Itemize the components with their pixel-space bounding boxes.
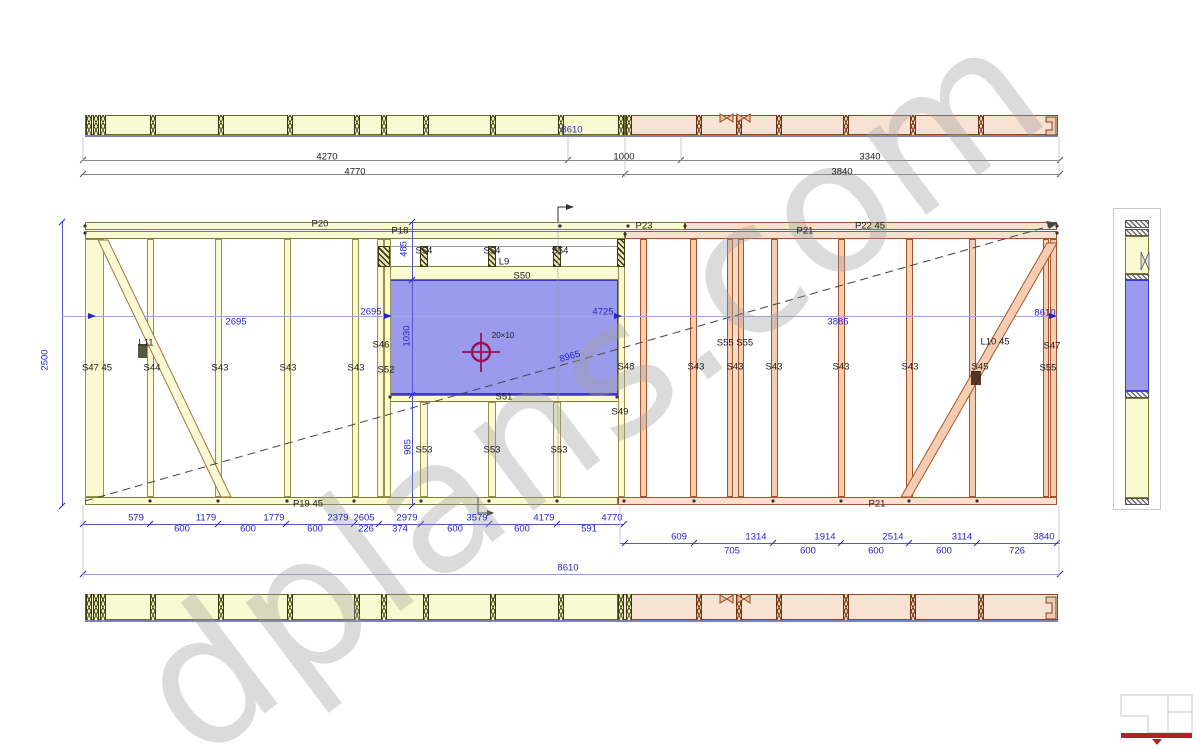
dim-label: 226 bbox=[358, 524, 374, 534]
dim-label: 4725 bbox=[592, 307, 613, 317]
dim-label: 600 bbox=[936, 546, 952, 556]
dim-label: 2514 bbox=[882, 532, 903, 542]
part-label: S55 S55 bbox=[717, 338, 753, 348]
part-label: P23 bbox=[636, 221, 653, 231]
dim-label: 4770 bbox=[344, 167, 365, 177]
dim-label: 3885 bbox=[827, 317, 848, 327]
dim-label: 2695 bbox=[225, 317, 246, 327]
dim-label: 2379 bbox=[327, 513, 348, 523]
dim-label: 4270 bbox=[316, 152, 337, 162]
dim-label: 1030 bbox=[402, 325, 412, 346]
dim-label: 2500 bbox=[40, 349, 50, 370]
part-label: S51 bbox=[496, 392, 513, 402]
part-label: S46 bbox=[373, 340, 390, 350]
part-label: P21 bbox=[869, 499, 886, 509]
dim-label: 3579 bbox=[466, 513, 487, 523]
framing-drawing-sheet: dplans.com P20P18P23P21P22 45P19 45P21S4… bbox=[0, 0, 1200, 750]
dim-label: 1779 bbox=[263, 513, 284, 523]
dim-label: 8965 bbox=[559, 350, 582, 365]
dim-label: 600 bbox=[240, 524, 256, 534]
part-label: P18 bbox=[392, 226, 409, 236]
dim-label: 8610 bbox=[557, 563, 578, 573]
part-label: S49 bbox=[612, 407, 629, 417]
dim-label: 1314 bbox=[745, 532, 766, 542]
part-label: L11 bbox=[138, 338, 153, 348]
part-label: P22 45 bbox=[855, 221, 885, 231]
part-label: L10 45 bbox=[980, 337, 1009, 347]
part-label: S53 bbox=[551, 445, 568, 455]
dim-label: 4179 bbox=[533, 513, 554, 523]
part-label: S44 bbox=[144, 363, 161, 373]
dim-label: 3340 bbox=[859, 152, 880, 162]
part-label: S43 bbox=[727, 362, 744, 372]
part-label: S54 bbox=[416, 246, 433, 256]
dim-label: 609 bbox=[671, 532, 687, 542]
dim-label: 705 bbox=[724, 546, 740, 556]
part-label: P20 bbox=[312, 219, 329, 229]
dim-label: 1000 bbox=[613, 152, 634, 162]
dim-label: 600 bbox=[307, 524, 323, 534]
part-label: S43 bbox=[280, 363, 297, 373]
part-label: S43 bbox=[688, 362, 705, 372]
dim-label: 2605 bbox=[353, 513, 374, 523]
part-label: S43 bbox=[348, 363, 365, 373]
part-label: S53 bbox=[484, 445, 501, 455]
dim-label: 579 bbox=[128, 513, 144, 523]
part-label: S47 bbox=[1044, 341, 1061, 351]
part-label: S43 bbox=[212, 363, 229, 373]
dim-label: 4770 bbox=[601, 513, 622, 523]
part-label: S54 bbox=[484, 246, 501, 256]
dim-label: 600 bbox=[174, 524, 190, 534]
dim-label: 1914 bbox=[814, 532, 835, 542]
dim-label: 591 bbox=[581, 524, 597, 534]
dim-label: 485 bbox=[399, 241, 409, 257]
part-label: 20×10 bbox=[492, 332, 514, 340]
dim-label: 3840 bbox=[831, 167, 852, 177]
dim-label: 1179 bbox=[196, 513, 216, 523]
dim-label: 2695 bbox=[360, 307, 381, 317]
dim-label: 600 bbox=[447, 524, 463, 534]
part-label: S43 bbox=[902, 362, 919, 372]
dim-label: 3114 bbox=[952, 532, 972, 542]
dim-label: 600 bbox=[868, 546, 884, 556]
dim-label: 726 bbox=[1009, 546, 1025, 556]
dim-label: 985 bbox=[403, 439, 413, 455]
dim-label: 3840 bbox=[1033, 532, 1054, 542]
part-label: P19 45 bbox=[293, 499, 323, 509]
part-label: S52 bbox=[378, 365, 395, 375]
part-label: S53 bbox=[416, 445, 433, 455]
dim-label: 374 bbox=[392, 524, 408, 534]
part-label: S54 bbox=[552, 246, 569, 256]
dim-label: 600 bbox=[800, 546, 816, 556]
part-label: L9 bbox=[499, 257, 510, 267]
dim-label: 2979 bbox=[396, 513, 417, 523]
dim-label: 8610 bbox=[1034, 308, 1055, 318]
dim-label: 8610 bbox=[561, 125, 582, 135]
part-label: S45 bbox=[972, 362, 989, 372]
part-label: P21 bbox=[797, 226, 814, 236]
part-label: S47 45 bbox=[82, 363, 112, 373]
part-label: S50 bbox=[514, 271, 531, 281]
part-label: S55 bbox=[1040, 363, 1057, 373]
part-label: S43 bbox=[833, 362, 850, 372]
part-label: S43 bbox=[766, 362, 783, 372]
part-label: S48 bbox=[618, 362, 635, 372]
label-layer: P20P18P23P21P22 45P19 45P21S47 45S44S43S… bbox=[0, 0, 1200, 750]
dim-label: 600 bbox=[514, 524, 530, 534]
